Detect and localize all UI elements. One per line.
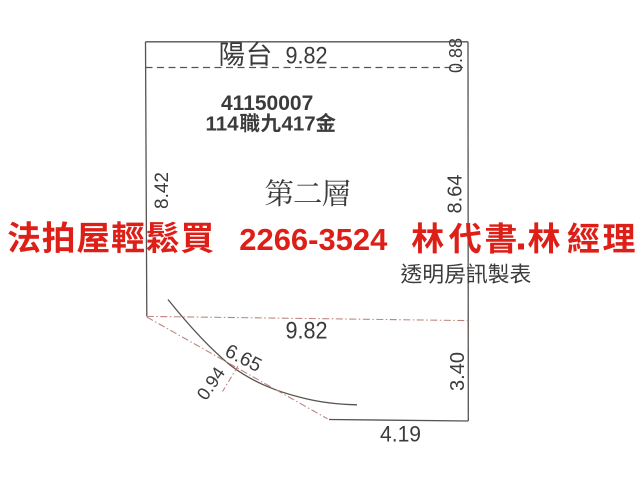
svg-text:3.40: 3.40 [447,352,469,391]
svg-text:0.88: 0.88 [446,38,466,73]
svg-text:9.82: 9.82 [286,43,328,70]
svg-text:8.42: 8.42 [152,172,173,209]
svg-text:4.19: 4.19 [380,422,421,447]
svg-text:2266-3524: 2266-3524 [239,222,388,257]
svg-text:8.64: 8.64 [445,175,467,214]
svg-text:9.82: 9.82 [286,318,328,345]
svg-text:114: 114 [206,113,240,136]
svg-text:417: 417 [282,113,316,136]
